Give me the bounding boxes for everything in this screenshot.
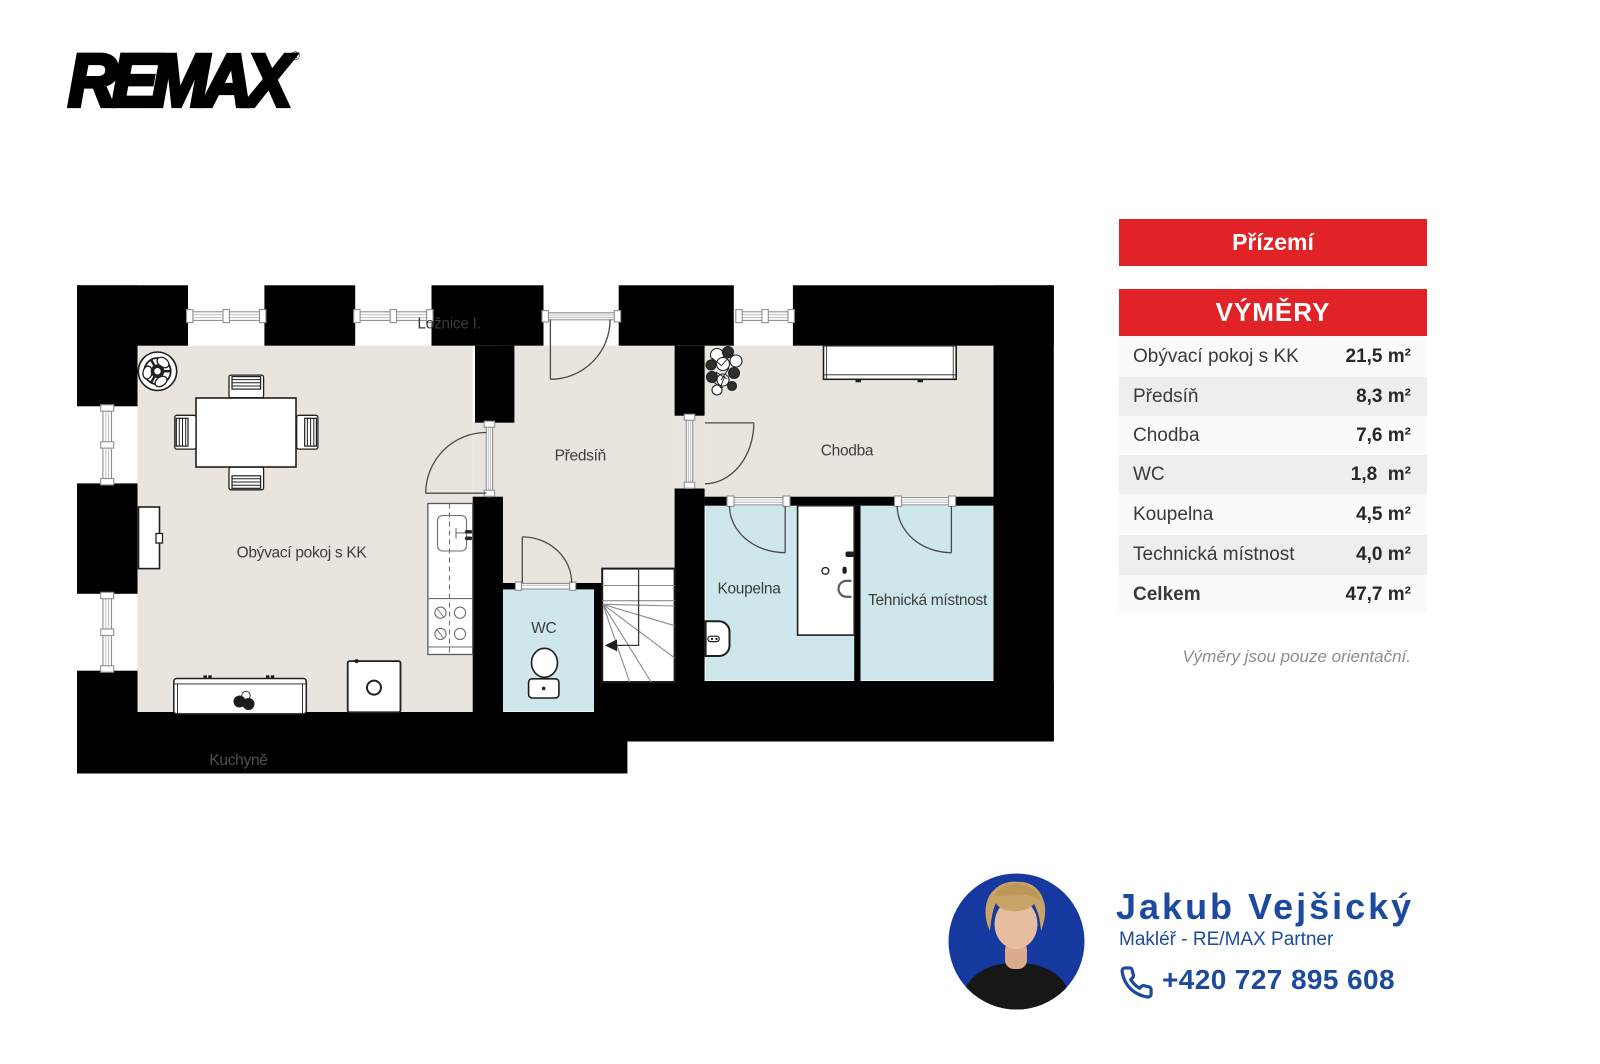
svg-text:Předsíň: Předsíň bbox=[555, 448, 606, 465]
svg-text:Obývací pokoj s KK: Obývací pokoj s KK bbox=[237, 545, 368, 562]
svg-text:Koupelna: Koupelna bbox=[717, 581, 781, 598]
svg-text:Tehnická místnost: Tehnická místnost bbox=[868, 592, 988, 609]
svg-text:Chodba: Chodba bbox=[821, 443, 874, 460]
svg-text:WC: WC bbox=[531, 620, 556, 637]
svg-text:Ložnice I.: Ložnice I. bbox=[417, 316, 480, 333]
svg-text:Kuchyně: Kuchyně bbox=[209, 752, 267, 769]
